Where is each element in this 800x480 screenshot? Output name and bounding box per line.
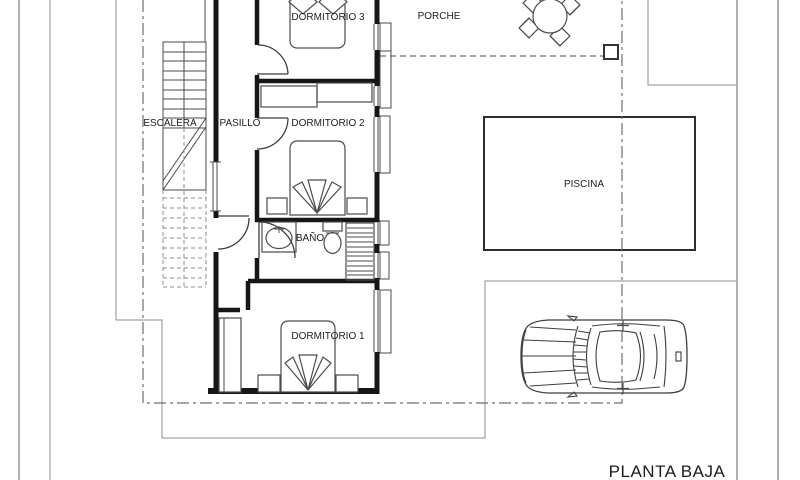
room-label-escalera: ESCALERA <box>143 118 197 129</box>
room-label-porche: PORCHE <box>418 11 461 22</box>
bed-dormitorio-2 <box>267 141 367 215</box>
room-label-bano: BAÑO <box>296 231 325 244</box>
bed-dormitorio-3 <box>289 0 347 48</box>
toilet <box>323 222 342 254</box>
window-sill-boxes <box>380 23 391 353</box>
nightstand <box>347 198 367 214</box>
nightstand <box>336 375 358 392</box>
bathroom-fixtures <box>262 222 374 280</box>
stairs-upper-flight-dashed <box>163 128 206 288</box>
room-label-dormitorio-2: DORMITORIO 2 <box>291 118 365 129</box>
plan-title: PLANTA BAJA <box>609 462 726 480</box>
porch-dining-set <box>519 0 580 46</box>
round-table <box>533 0 567 33</box>
floor-plan-canvas: DORMITORIO 3 PORCHE ESCALERA PASILLO DOR… <box>0 0 800 480</box>
room-label-dormitorio-1: DORMITORIO 1 <box>291 331 365 342</box>
room-label-pasillo: PASILLO <box>220 118 261 129</box>
door-dormitorio-2 <box>257 118 288 149</box>
entrance-door <box>218 216 249 249</box>
room-label-piscina: PISCINA <box>564 179 604 190</box>
stairs <box>163 0 206 288</box>
car-top-view <box>521 316 687 397</box>
wardrobe <box>219 318 241 392</box>
door-dormitorio-3 <box>257 45 288 74</box>
nightstand <box>267 198 287 214</box>
porch-column <box>604 45 618 59</box>
built-in-closets <box>261 83 372 107</box>
sink <box>262 222 296 252</box>
room-label-dormitorio-3: DORMITORIO 3 <box>291 12 365 23</box>
nightstand <box>258 375 280 392</box>
bed-dormitorio-1 <box>219 318 358 392</box>
shower <box>346 223 374 280</box>
